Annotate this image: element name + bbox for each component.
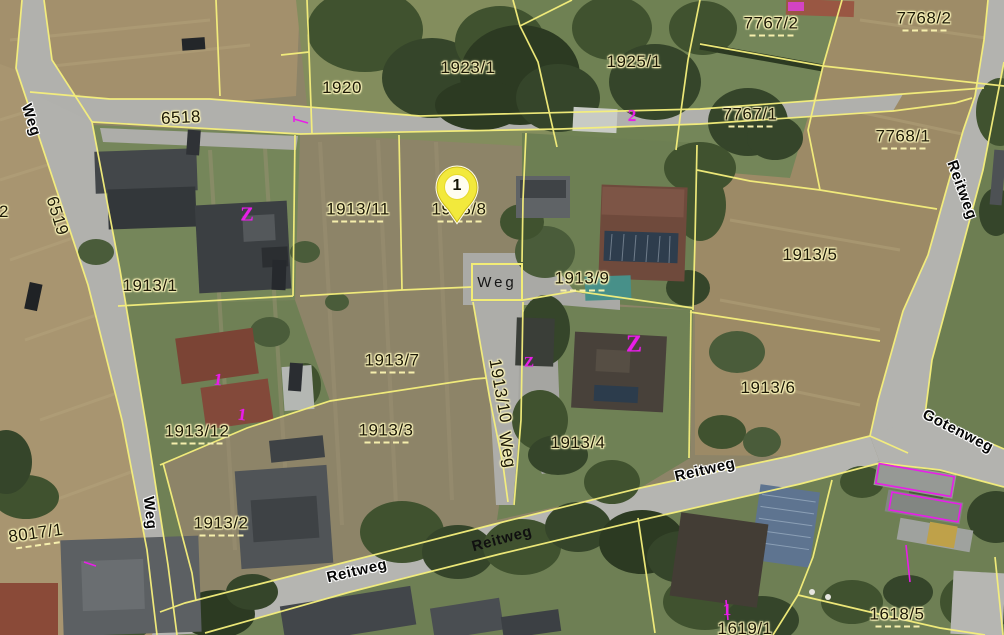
parcel-label: 7768/1 [876,127,931,150]
street-label: Weg [140,496,160,531]
cadastral-symbol: 1 [236,405,247,426]
map-viewport[interactable]: 651819201923/11925/17767/27768/27767/177… [0,0,1004,635]
parcel-label: 2 [0,202,9,222]
parcel-label: 7768/2 [897,9,952,32]
cadastral-symbol: Z [524,355,534,372]
parcel-label: 1925/1 [607,52,662,72]
parcel-label: 1913/1 [123,276,178,296]
parcel-label: 1913/3 [359,421,414,444]
parcel-label: 1913/12 [165,422,230,445]
parcel-label: 1913/2 [194,514,249,537]
parcel-label: 1913/4 [551,433,606,453]
parcel-label: 7767/1 [723,105,778,128]
cadastral-symbol: Z [626,332,642,359]
parcel-label: 8017/1 [7,520,65,550]
street-label: Reitweg [943,158,980,222]
street-label: Gotenweg [920,406,997,456]
cadastral-symbol: 2 [628,106,637,126]
pin-icon [433,164,481,228]
cadastral-symbol: 1 [212,370,223,391]
parcel-label: 1619/1 [718,619,773,635]
street-label: Reitweg [673,455,737,485]
parcel-label: 7767/2 [744,14,799,37]
label-layer: 651819201923/11925/17767/27768/27767/177… [0,0,1004,635]
street-label: Weg [18,102,44,139]
weg-sign: Weg [471,263,523,301]
parcel-label: 1913/7 [365,351,420,374]
street-label: Reitweg [470,523,534,555]
map-marker[interactable]: 1 [433,164,481,228]
cadastral-symbol: Z [240,204,253,227]
parcel-label: Weg [494,430,520,469]
parcel-label: 6519 [42,194,73,238]
parcel-label: 1913/11 [326,200,390,223]
parcel-label: 1913/6 [741,378,796,398]
street-label: Reitweg [325,556,389,586]
parcel-label: 1913/10 [485,357,516,424]
cadastral-symbol: 1 [723,600,732,620]
parcel-label: 6518 [161,107,202,129]
parcel-label: 1923/1 [441,58,496,78]
parcel-label: 1913/5 [783,245,838,265]
parcel-label: 1618/5 [870,605,925,628]
parcel-label: 1920 [322,78,362,98]
marker-number: 1 [433,177,481,195]
parcel-label: 1913/9 [555,269,610,292]
